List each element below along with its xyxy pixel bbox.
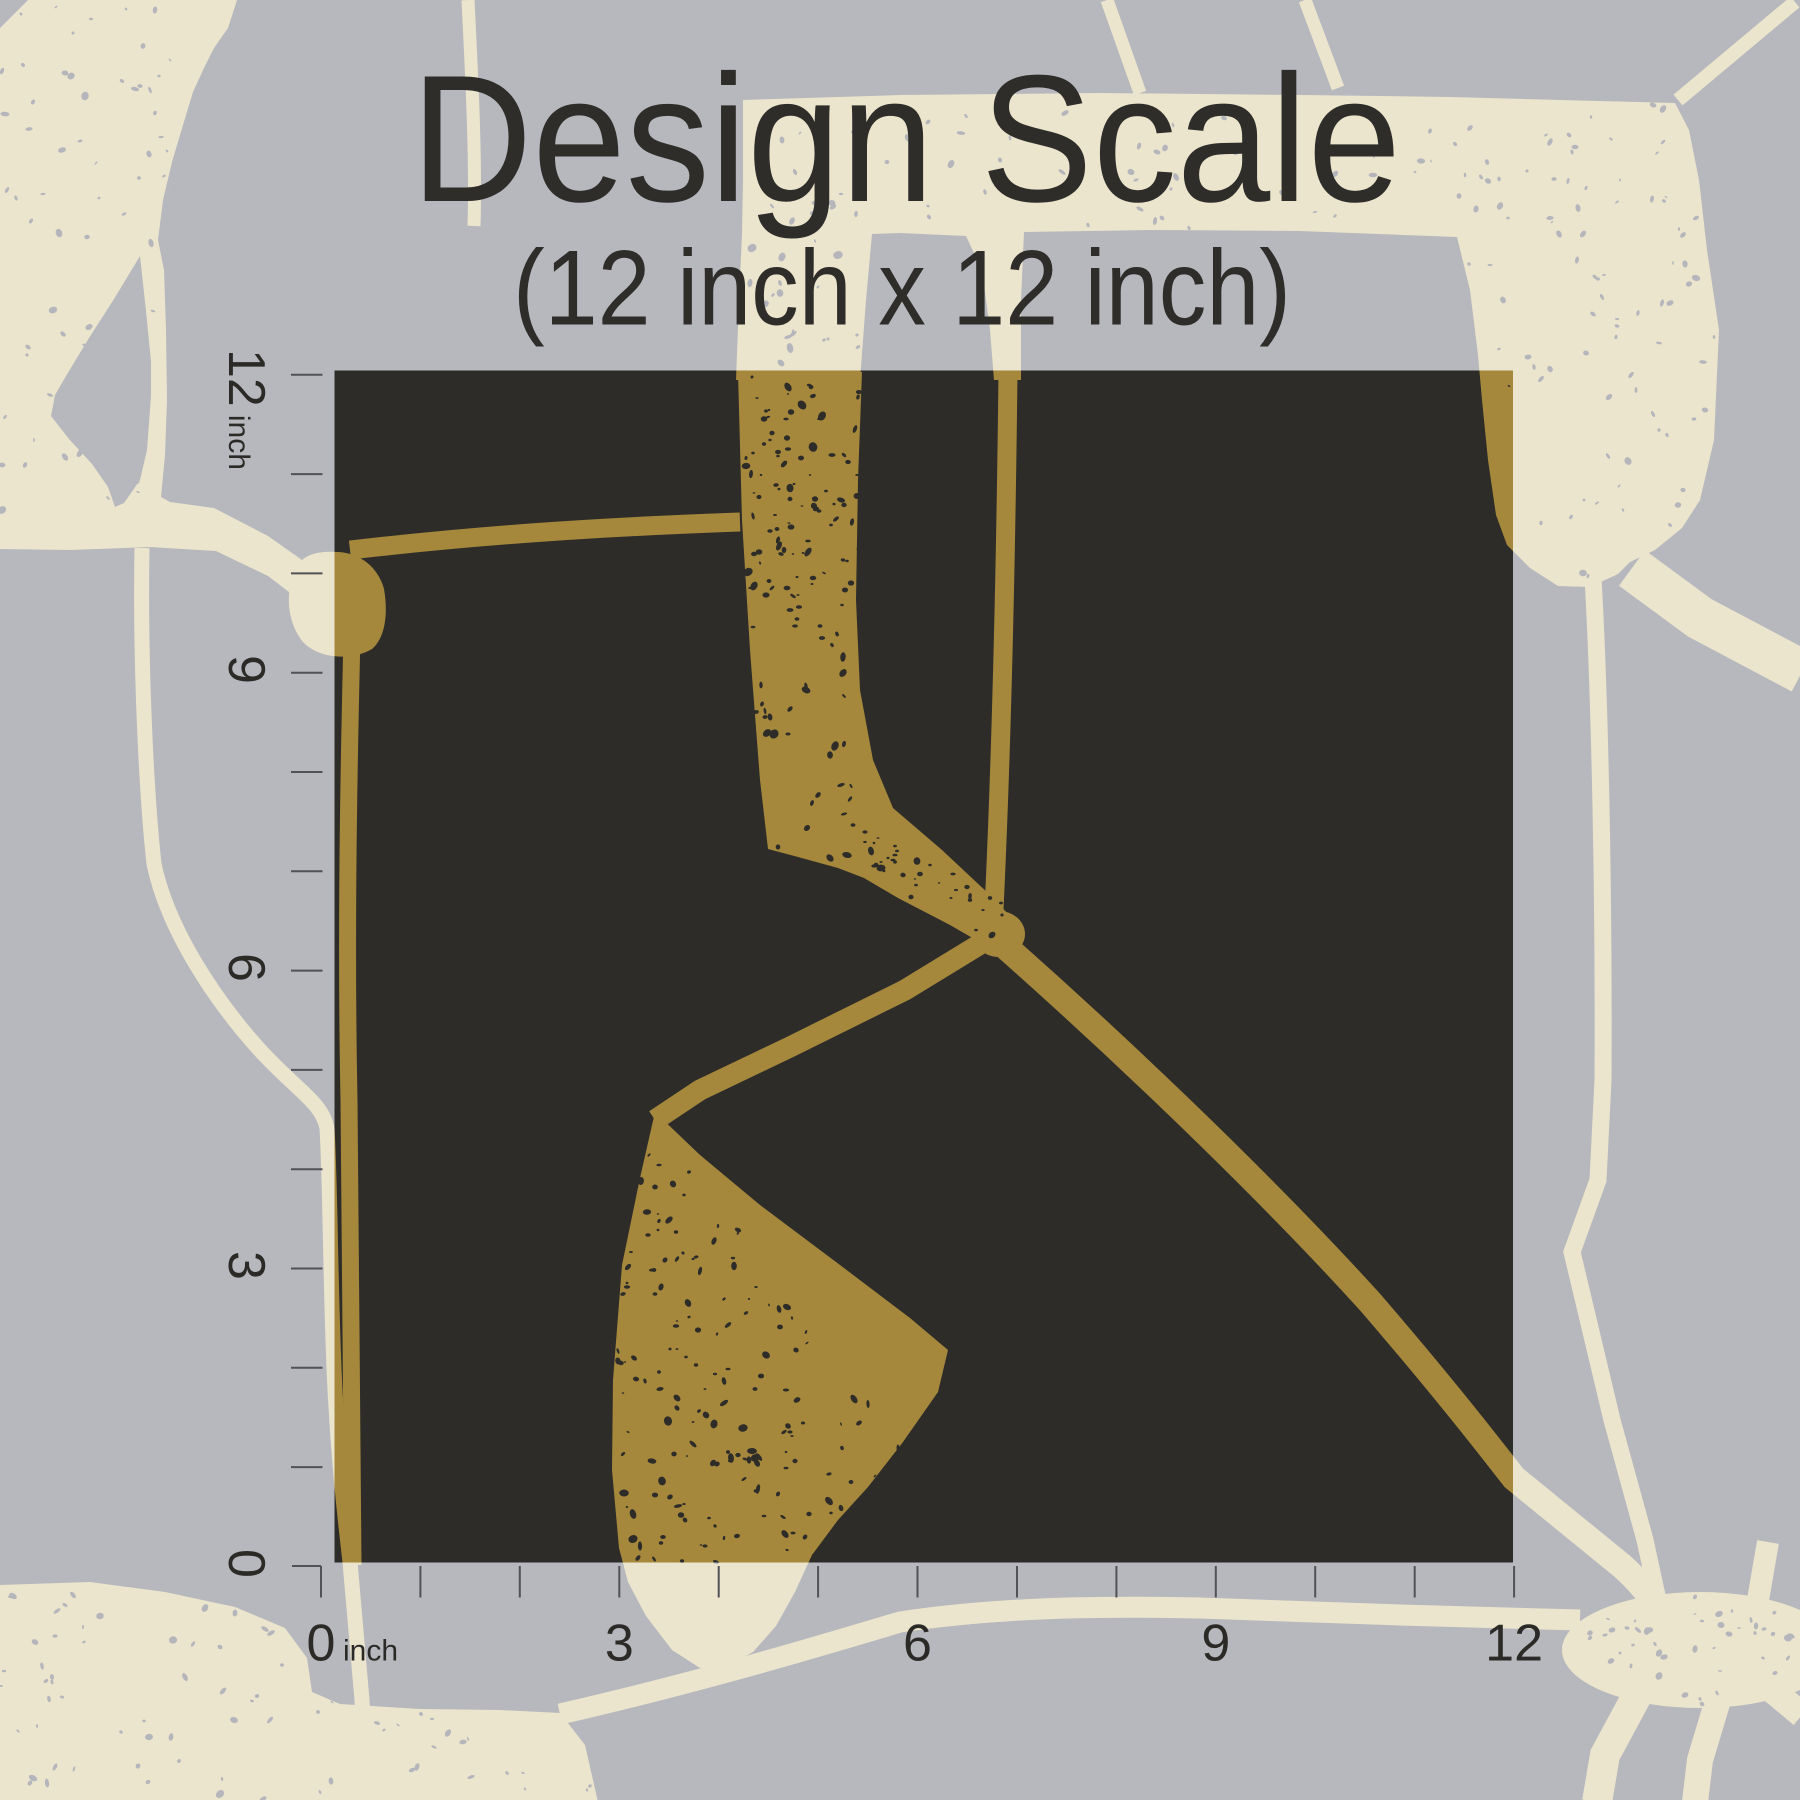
svg-text:3: 3 <box>605 1615 634 1673</box>
svg-text:inch: inch <box>343 1635 398 1668</box>
svg-text:6: 6 <box>903 1615 932 1673</box>
svg-text:12: 12 <box>1485 1615 1543 1673</box>
svg-text:9: 9 <box>1201 1615 1230 1673</box>
svg-text:Design Scale: Design Scale <box>411 38 1401 240</box>
svg-text:9: 9 <box>217 655 275 684</box>
svg-text:0: 0 <box>217 1549 275 1578</box>
svg-text:3: 3 <box>217 1251 275 1280</box>
svg-text:6: 6 <box>217 953 275 982</box>
svg-text:0: 0 <box>307 1615 336 1673</box>
svg-text:(12 inch x 12 inch): (12 inch x 12 inch) <box>513 228 1291 348</box>
